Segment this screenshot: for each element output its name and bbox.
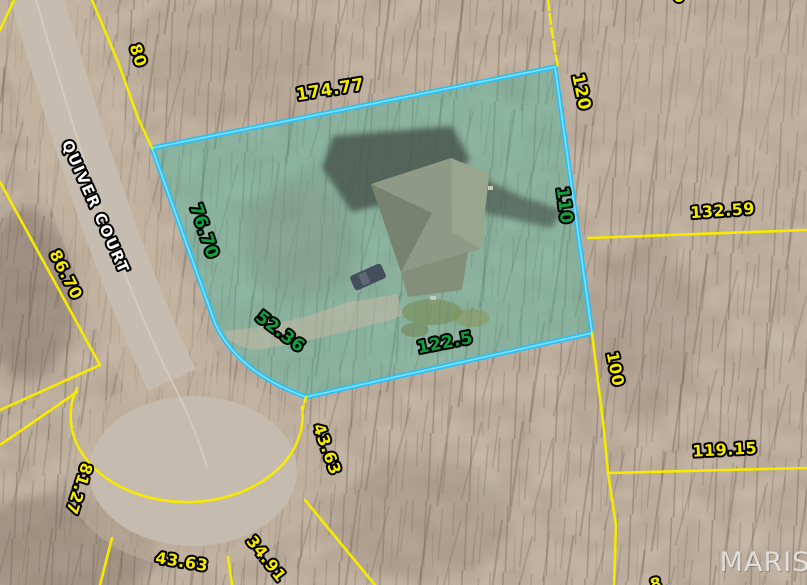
shrub xyxy=(402,299,462,325)
aerial-map-canvas[interactable]: 80 174.77 120 110 132.59 76.70 86.70 52.… xyxy=(0,0,807,585)
shrub xyxy=(401,323,429,337)
yard-debris xyxy=(488,186,493,190)
dimension-label-119-15: 119.15 xyxy=(692,438,758,460)
shrub xyxy=(454,309,490,327)
parcel-map-view[interactable]: 80 174.77 120 110 132.59 76.70 86.70 52.… xyxy=(0,0,807,585)
dimension-label-partial-top: 0 xyxy=(673,0,685,6)
yard-debris xyxy=(430,296,436,300)
maris-watermark: MARIS xyxy=(720,547,807,578)
tree-shadow-patch xyxy=(580,240,700,420)
